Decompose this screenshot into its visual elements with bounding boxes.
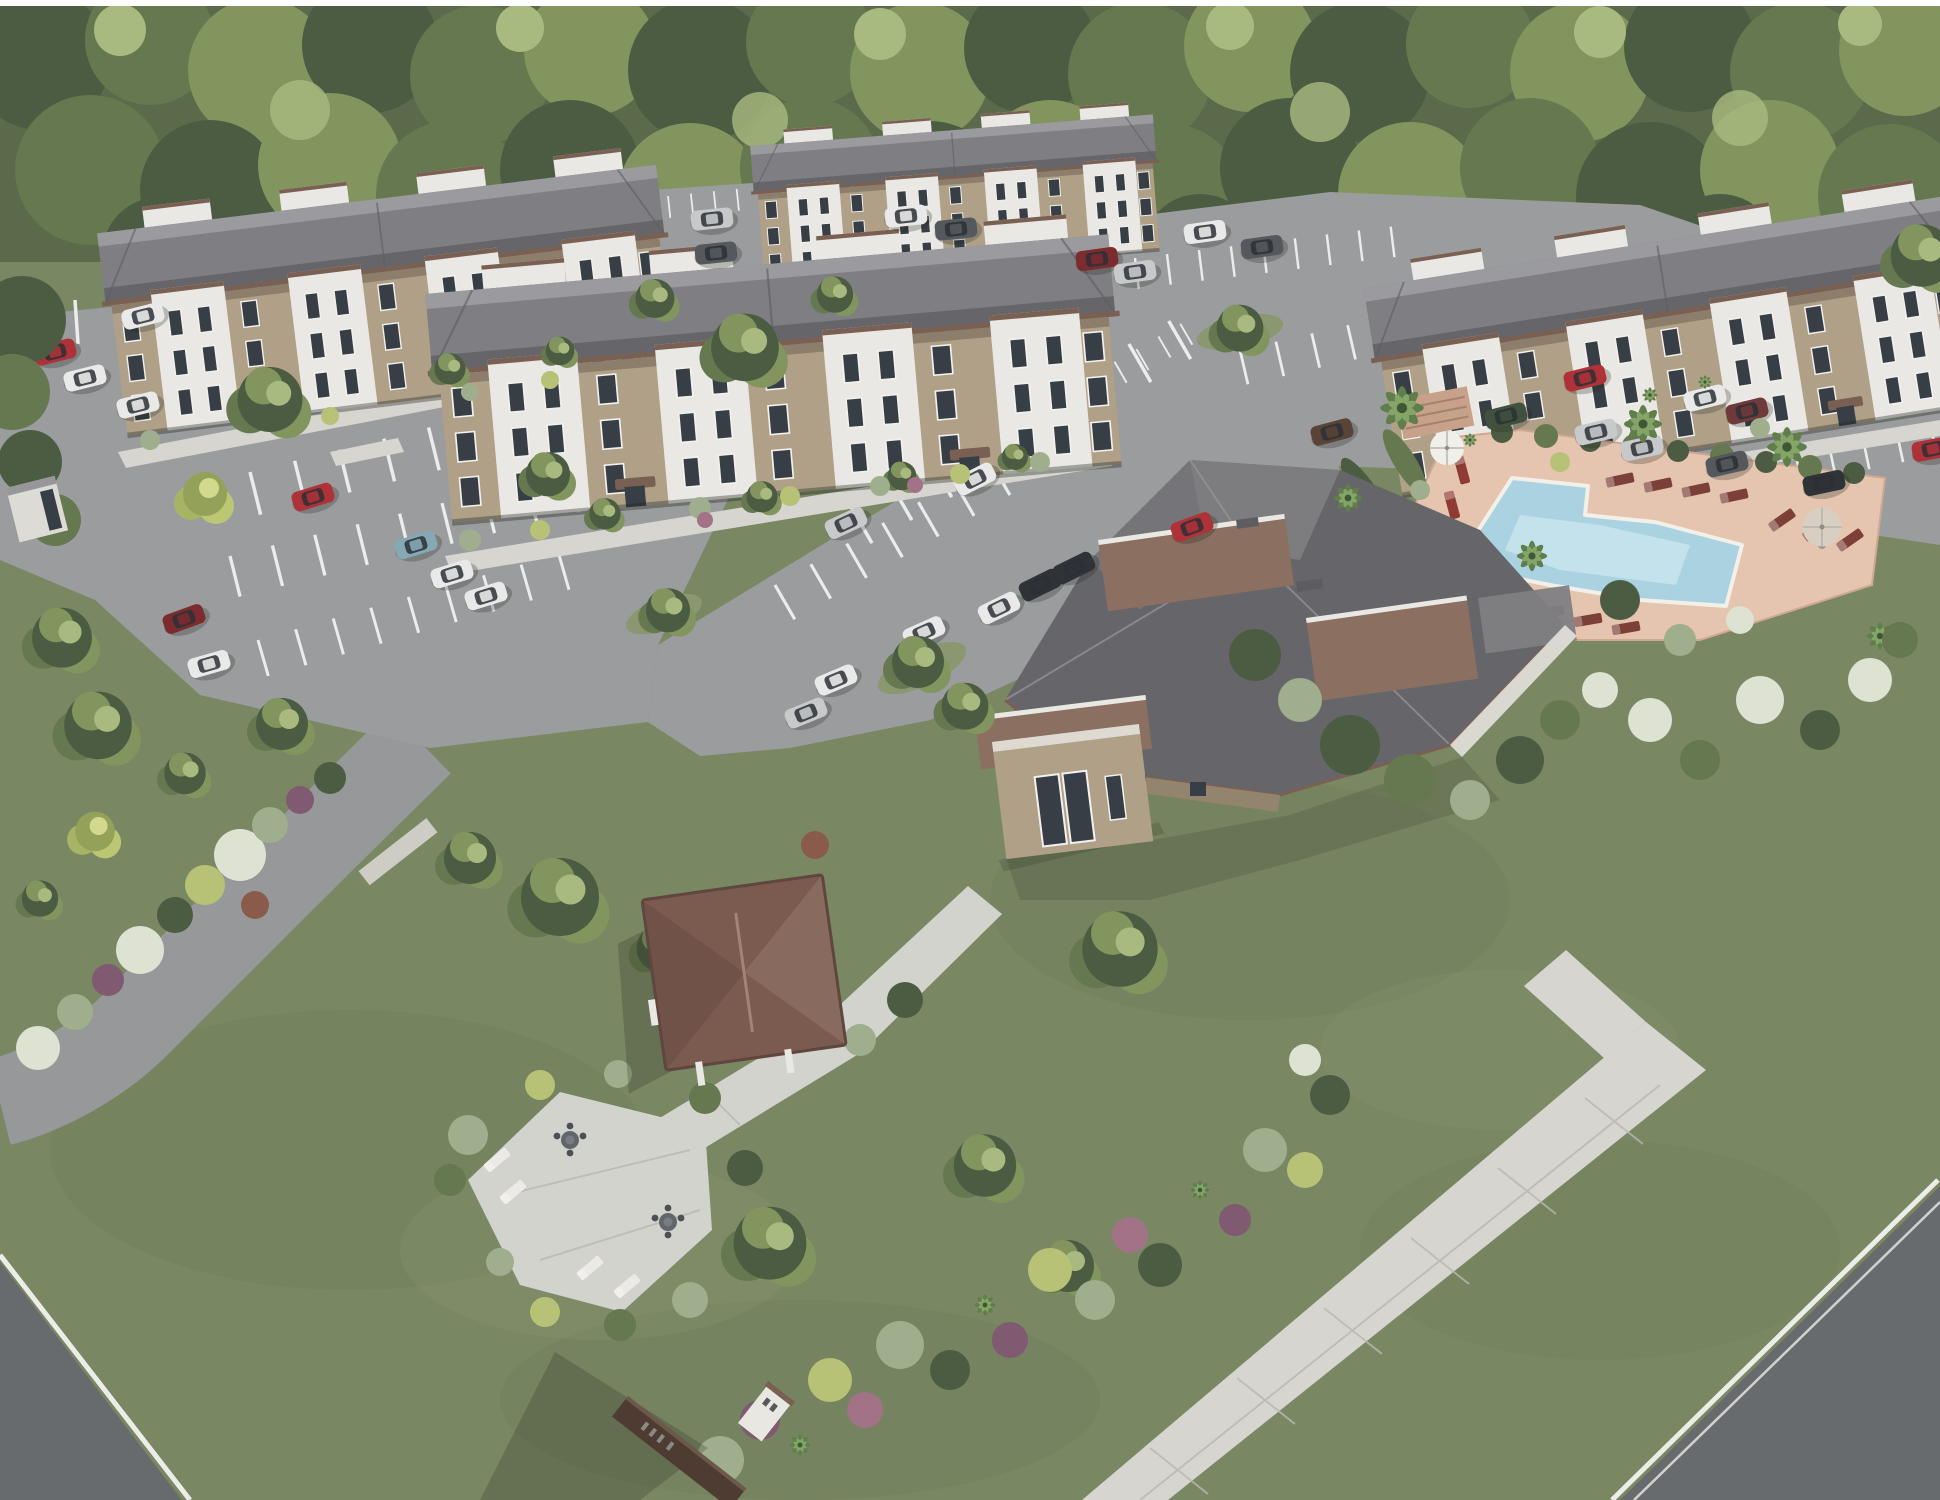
palm-tree — [1767, 427, 1807, 467]
shrub — [1028, 1248, 1072, 1292]
shrub — [1736, 676, 1784, 724]
palm-tree — [1624, 405, 1662, 443]
palm-tree — [1334, 484, 1363, 513]
shrub — [1075, 1280, 1115, 1320]
shrub — [1219, 1204, 1251, 1236]
palm-tree — [1380, 386, 1424, 430]
shrub — [930, 1350, 970, 1390]
pool-umbrella — [1802, 507, 1841, 546]
shrub — [1320, 715, 1380, 775]
shrub — [434, 1164, 466, 1196]
shrub — [1278, 678, 1322, 722]
agave — [1191, 1181, 1210, 1200]
shrub — [1550, 452, 1570, 472]
shrub — [950, 464, 970, 484]
shrub — [1582, 672, 1618, 708]
shrub — [672, 1282, 708, 1318]
shrub — [1229, 629, 1281, 681]
shrub — [727, 1150, 763, 1186]
shrub — [16, 1026, 60, 1070]
shrub — [321, 407, 339, 425]
shrub — [1600, 580, 1640, 620]
shrub — [780, 486, 800, 506]
shrub — [1726, 606, 1754, 634]
rendering-canvas — [0, 0, 1940, 1500]
palm-tree — [1517, 541, 1547, 571]
shrub — [992, 1322, 1028, 1358]
shrub — [1540, 700, 1580, 740]
agave — [790, 1435, 811, 1456]
shrub — [1030, 452, 1050, 472]
shrub — [448, 1115, 488, 1155]
frame-border — [0, 0, 1940, 6]
clubhouse-window — [1190, 782, 1206, 796]
shrub — [1882, 622, 1918, 658]
shrub — [1310, 1075, 1350, 1115]
shrub — [1848, 658, 1892, 702]
shrub — [1496, 736, 1544, 784]
shrub — [486, 1248, 514, 1276]
shrub — [1750, 418, 1770, 438]
shrub — [530, 1297, 560, 1327]
shrub — [1680, 740, 1720, 780]
aerial-rendering — [0, 0, 1940, 1500]
shrub — [1243, 1128, 1287, 1172]
shrub — [1138, 1243, 1182, 1287]
shrub — [157, 897, 193, 933]
shrub — [847, 1392, 883, 1428]
shrub-red — [801, 831, 829, 859]
shrub — [252, 807, 288, 843]
shrub — [697, 512, 713, 528]
agave — [1463, 433, 1476, 446]
agave — [1642, 387, 1657, 402]
shrub — [185, 865, 225, 905]
shrub — [870, 476, 890, 496]
shrub — [844, 1024, 876, 1056]
agave — [1698, 375, 1711, 388]
shrub — [689, 1082, 721, 1114]
shrub — [1287, 1152, 1323, 1188]
shrub — [314, 762, 346, 794]
shrub-red — [241, 891, 269, 919]
shrub — [525, 1070, 555, 1100]
agave — [975, 1295, 996, 1316]
shrub — [1112, 1217, 1148, 1253]
shrub — [541, 371, 559, 389]
shrub — [1628, 698, 1672, 742]
shrub — [1384, 754, 1436, 806]
shrub — [1450, 780, 1490, 820]
shrub — [876, 1321, 924, 1369]
shrub — [92, 964, 124, 996]
shrub — [57, 994, 93, 1030]
shrub — [1289, 1044, 1321, 1076]
shrub — [604, 1309, 636, 1341]
shrub — [1800, 710, 1840, 750]
shrub — [887, 982, 923, 1018]
shrub — [530, 520, 550, 540]
shrub — [1664, 624, 1696, 656]
shrub — [461, 383, 479, 401]
shrub — [1410, 480, 1430, 500]
shrub — [459, 529, 481, 551]
shrub — [116, 926, 164, 974]
shrub — [907, 477, 923, 493]
shrub — [808, 1358, 852, 1402]
shrub — [286, 786, 314, 814]
shrub — [140, 430, 160, 450]
pool-umbrella — [1430, 431, 1464, 465]
